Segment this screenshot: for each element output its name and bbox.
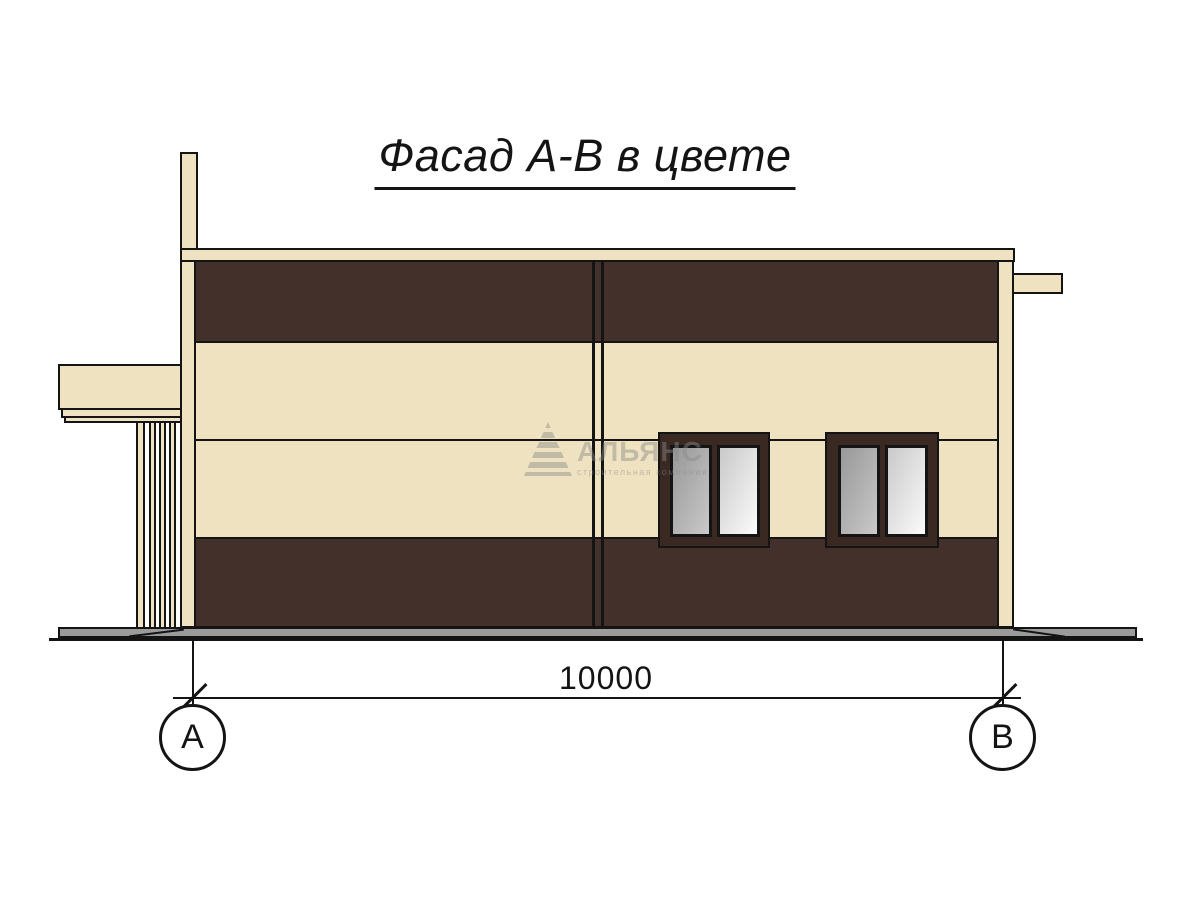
top-accent-band [196,262,997,343]
canopy-slat [136,421,145,629]
roof-beam-right [1012,273,1063,294]
canopy-slat [169,421,176,629]
bottom-accent-band [196,537,997,626]
window-pane [838,445,880,537]
window-left [658,432,770,548]
canopy-slat [159,421,166,629]
wall-post-right [997,260,1014,628]
window-pane [885,445,928,537]
ground-line [49,638,1143,641]
ground-strip [58,627,1137,638]
axis-marker-a: А [159,704,226,771]
facade-drawing: Фасад А-В в цвете 10000 А В [0,0,1200,900]
facade-seam-line [592,262,595,626]
window-pane [670,445,712,537]
axis-marker-b: В [969,704,1036,771]
axis-label-a: А [181,718,204,757]
drawing-title: Фасад А-В в цвете [375,130,796,190]
canopy-slab [58,364,182,410]
window-right [825,432,939,548]
window-pane [717,445,760,537]
canopy-slat [149,421,156,629]
chimney [180,152,198,250]
axis-label-b: В [991,718,1014,757]
dimension-line [173,697,1021,699]
facade-seam-line [601,262,604,626]
dimension-value: 10000 [559,660,653,697]
